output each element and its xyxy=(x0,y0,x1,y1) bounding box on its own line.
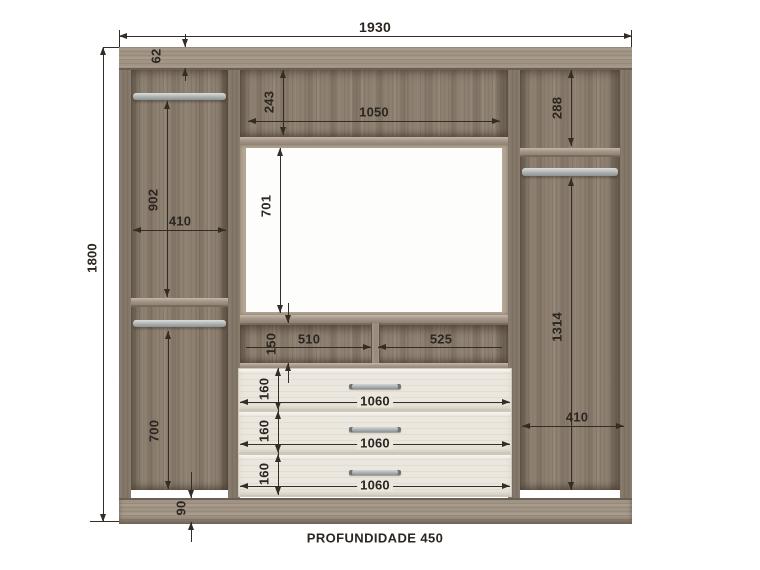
dim-arrow xyxy=(100,514,106,522)
dim-line xyxy=(119,36,632,37)
dim-arrow xyxy=(277,305,283,313)
dim-line xyxy=(168,331,169,489)
dim-arrow xyxy=(188,490,194,498)
dim-label-drawer2-width: 1060 xyxy=(357,437,393,450)
dim-arrow xyxy=(240,399,248,405)
dim-arrow xyxy=(502,399,510,405)
furniture-diagram: 1930 1800 62 243 1050 288 xyxy=(0,0,760,570)
dim-arrow xyxy=(492,118,500,124)
dim-label-drawer1-height: 160 xyxy=(258,378,271,400)
left-upper-hanging-rod xyxy=(133,93,226,100)
drawer-1-handle xyxy=(349,384,401,389)
dim-arrow xyxy=(502,441,510,447)
dim-arrow xyxy=(275,402,281,410)
dim-label-right-lower-width: 410 xyxy=(566,411,588,424)
dim-label-drawer3-height: 160 xyxy=(258,463,271,485)
dim-arrow xyxy=(182,68,188,76)
right-upper-shelf xyxy=(520,148,620,157)
right-hanging-rod xyxy=(522,168,618,176)
dim-arrow xyxy=(275,411,281,419)
dim-line xyxy=(246,347,371,348)
middle-niche-divider xyxy=(371,323,380,363)
dim-label-left-width: 410 xyxy=(169,215,191,228)
dim-label-drawer2-height: 160 xyxy=(258,420,271,442)
dim-label-left-upper-height: 902 xyxy=(147,189,160,211)
dim-arrow xyxy=(624,33,632,39)
dim-arrow xyxy=(165,331,171,339)
dim-arrow xyxy=(616,423,624,429)
dim-arrow xyxy=(164,101,170,109)
tv-opening xyxy=(246,148,502,312)
right-side-panel xyxy=(620,66,632,498)
drawer-stack xyxy=(238,368,512,495)
left-side-panel xyxy=(119,66,131,498)
dim-label-tv-height: 701 xyxy=(260,195,273,217)
drawer-2-handle xyxy=(349,427,401,432)
dim-arrow xyxy=(218,227,226,233)
dim-line xyxy=(103,47,104,522)
dim-arrow xyxy=(568,70,574,78)
dim-arrow xyxy=(502,483,510,489)
dim-arrow xyxy=(277,148,283,156)
dim-label-middle-niche-height: 150 xyxy=(265,333,278,355)
dim-arrow xyxy=(378,344,386,350)
left-lower-hanging-rod xyxy=(133,320,226,327)
dim-label-top-niche-width: 1050 xyxy=(359,106,389,119)
drawer-3-handle xyxy=(349,470,401,475)
dim-label-right-lower-height: 1314 xyxy=(551,312,564,342)
dim-arrow xyxy=(363,344,371,350)
dim-line xyxy=(167,101,168,297)
dim-arrow xyxy=(568,138,574,146)
dim-arrow xyxy=(568,482,574,490)
dim-line xyxy=(522,426,624,427)
dim-line xyxy=(378,347,502,348)
dim-line xyxy=(283,70,284,135)
dim-arrow xyxy=(285,315,291,323)
dim-arrow xyxy=(119,33,127,39)
dim-line xyxy=(280,148,281,313)
dim-arrow xyxy=(275,445,281,453)
dim-label-overall-width: 1930 xyxy=(359,20,391,34)
dim-label-base-height: 90 xyxy=(175,501,188,516)
dim-arrow xyxy=(522,423,530,429)
dim-label-drawer1-width: 1060 xyxy=(357,395,393,408)
dim-label-middle-right-width: 525 xyxy=(430,333,452,346)
dim-line xyxy=(278,368,279,495)
dim-arrow xyxy=(182,39,188,47)
dim-arrow xyxy=(240,441,248,447)
left-middle-shelf xyxy=(131,298,228,307)
dim-arrow xyxy=(133,227,141,233)
depth-label: PROFUNDIDADE 450 xyxy=(307,531,443,546)
dim-arrow xyxy=(568,178,574,186)
dim-arrow xyxy=(188,522,194,530)
dim-arrow xyxy=(100,47,106,55)
dim-arrow xyxy=(165,481,171,489)
dim-label-right-upper-height: 288 xyxy=(551,97,564,119)
dim-line xyxy=(133,230,226,231)
dim-arrow xyxy=(275,487,281,495)
dim-arrow xyxy=(275,454,281,462)
dim-arrow xyxy=(164,289,170,297)
dim-arrow xyxy=(280,70,286,78)
dim-line xyxy=(571,70,572,146)
dim-arrow xyxy=(280,127,286,135)
dim-line xyxy=(248,121,500,122)
dim-line xyxy=(571,178,572,490)
top-panel xyxy=(119,47,632,70)
dim-label-overall-height: 1800 xyxy=(86,243,99,273)
dim-label-middle-left-width: 510 xyxy=(298,333,320,346)
base-panel xyxy=(119,498,632,524)
dim-arrow xyxy=(248,118,256,124)
dim-label-top-panel: 62 xyxy=(150,49,163,64)
dim-label-top-niche-height: 243 xyxy=(263,91,276,113)
dim-label-drawer3-width: 1060 xyxy=(357,479,393,492)
dim-arrow xyxy=(285,363,291,371)
dim-arrow xyxy=(275,368,281,376)
dim-label-left-lower-height: 700 xyxy=(148,420,161,442)
dim-arrow xyxy=(240,483,248,489)
